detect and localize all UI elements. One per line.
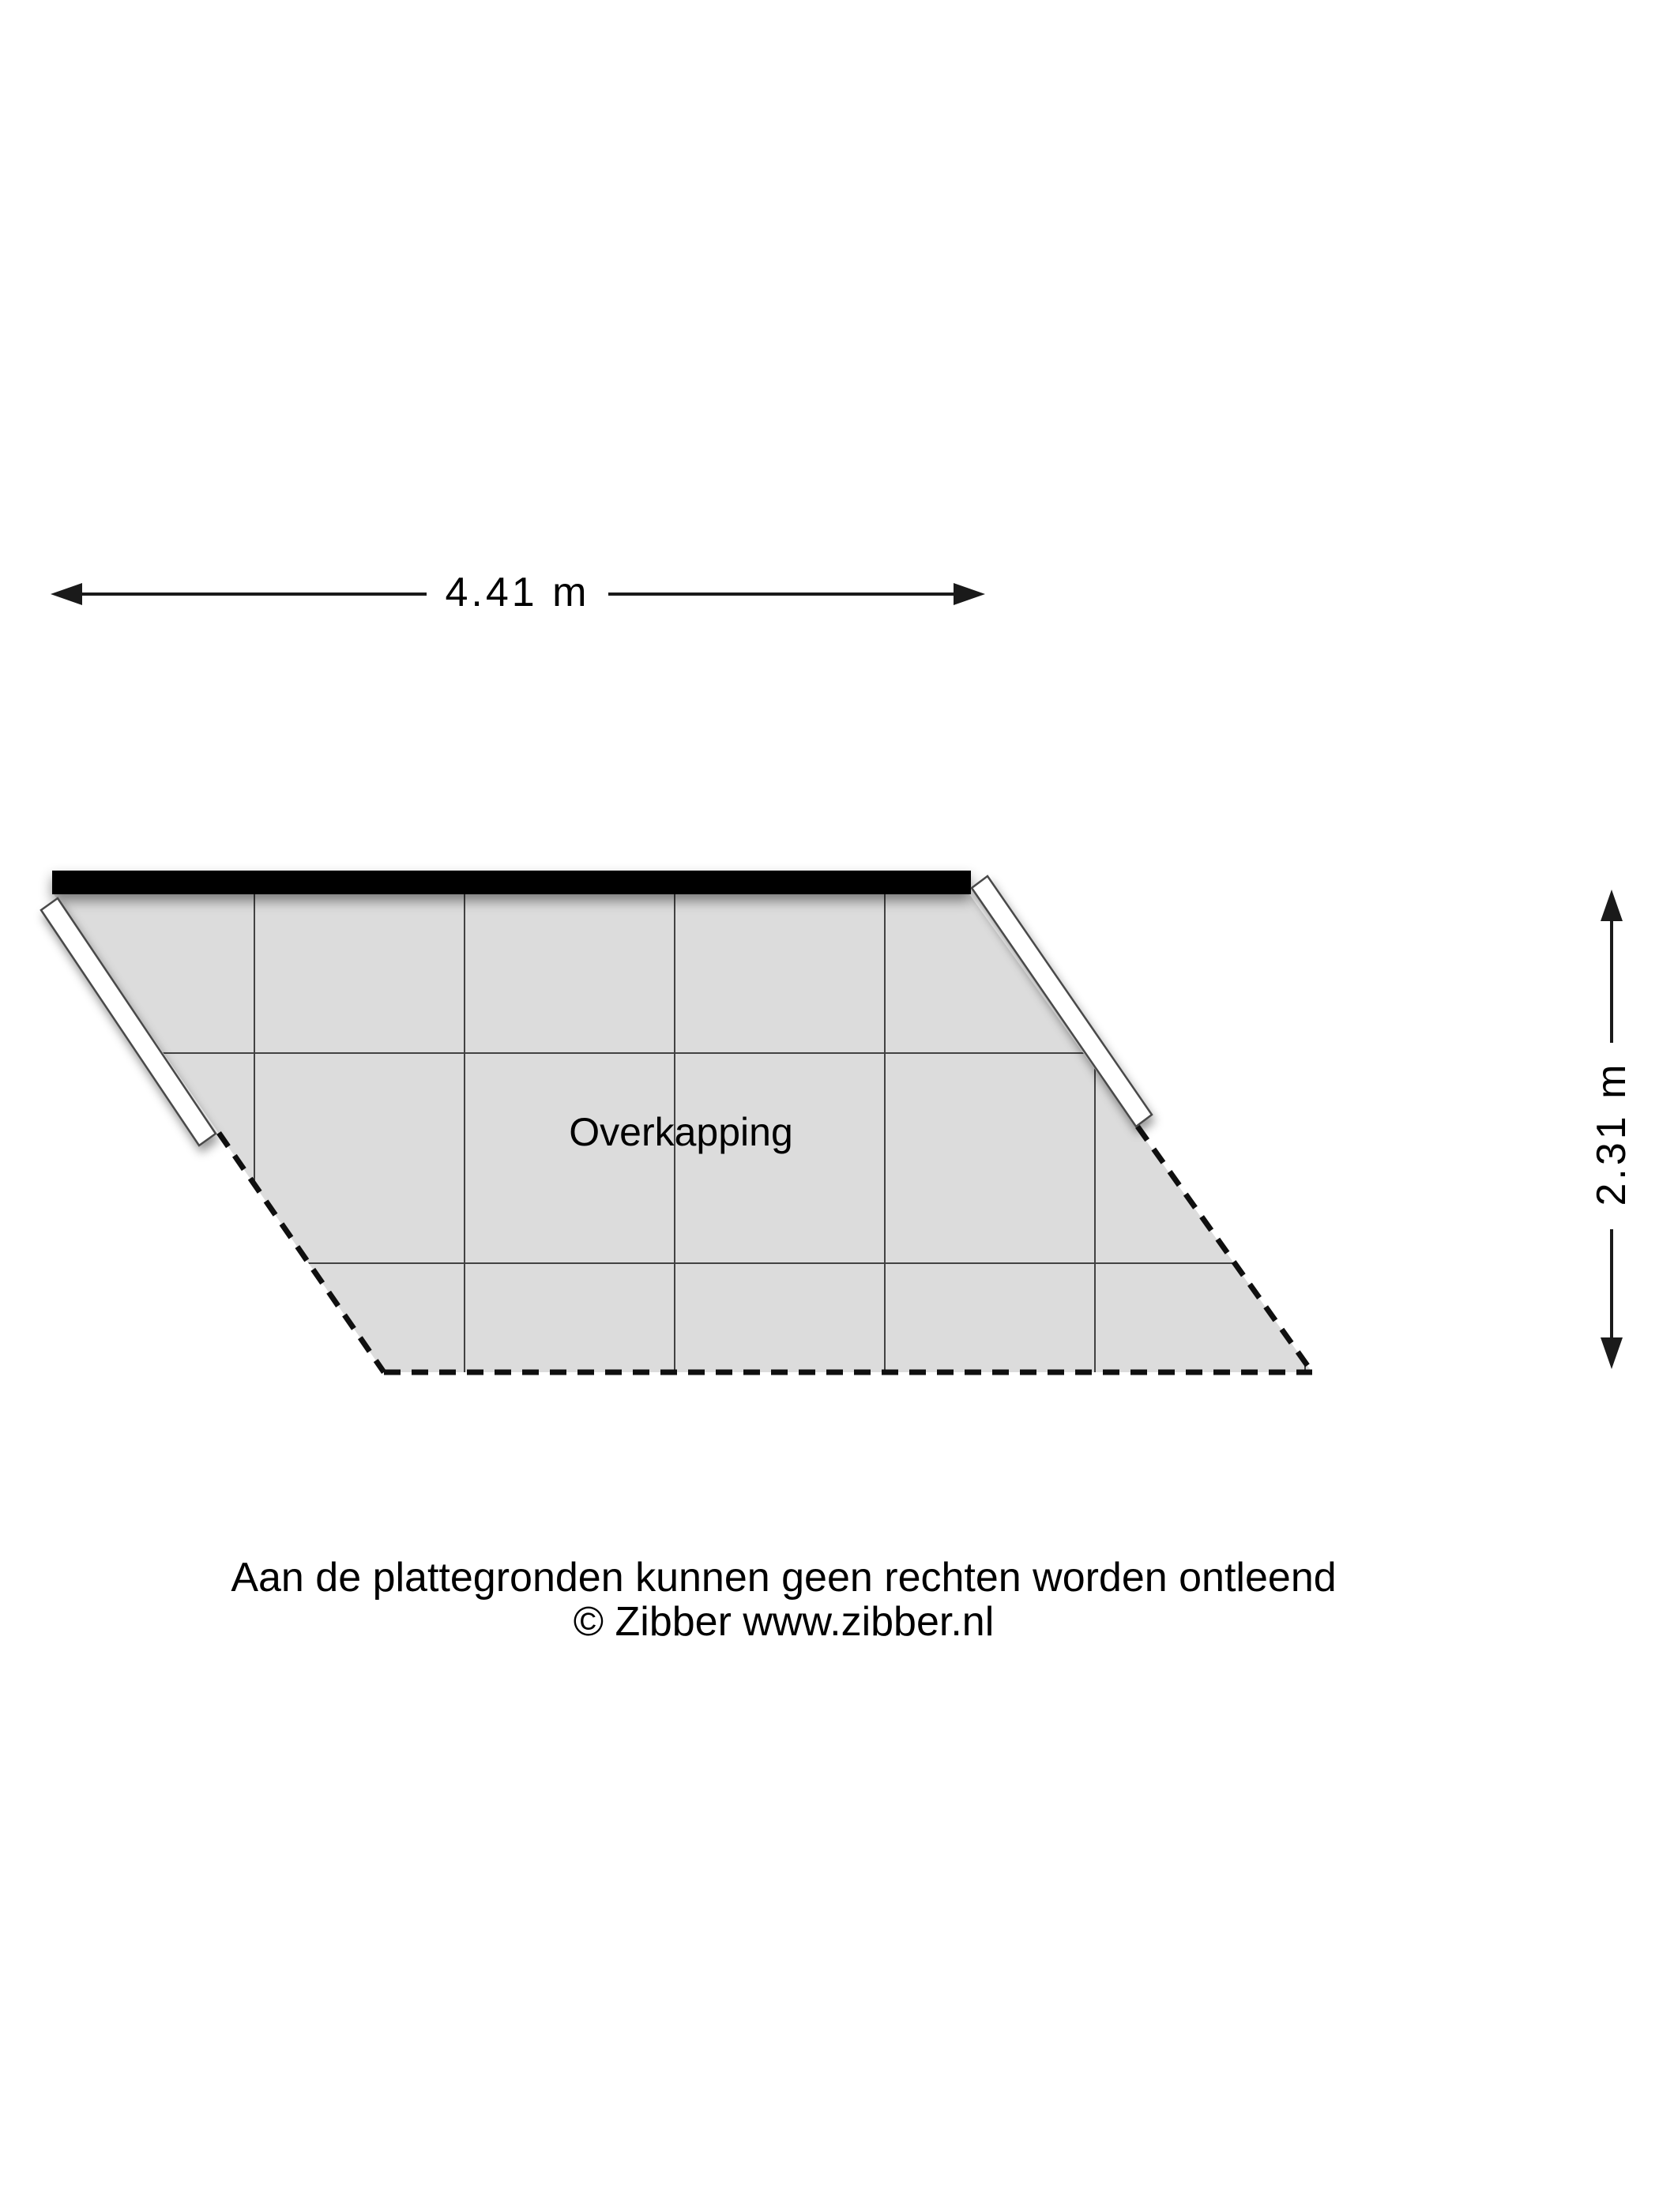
footer-copyright: © Zibber www.zibber.nl bbox=[191, 1600, 1376, 1644]
width-dim-arrowhead-right bbox=[954, 583, 985, 605]
wall-top-solid bbox=[52, 871, 971, 894]
footer-disclaimer: Aan de plattegronden kunnen geen rechten… bbox=[191, 1556, 1376, 1600]
room-label: Overkapping bbox=[444, 1110, 918, 1154]
floorplan-canvas bbox=[0, 0, 1659, 2212]
floorplan-page: 4.41 m 2.31 m Overkapping Aan de platteg… bbox=[0, 0, 1659, 2212]
width-dimension-label: 4.41 m bbox=[399, 570, 636, 615]
footer: Aan de plattegronden kunnen geen rechten… bbox=[191, 1556, 1376, 1644]
height-dim-arrowhead-bottom bbox=[1601, 1337, 1623, 1369]
height-dimension-label: 2.31 m bbox=[1589, 1015, 1634, 1252]
width-dim-arrowhead-left bbox=[51, 583, 82, 605]
height-dim-arrowhead-top bbox=[1601, 890, 1623, 921]
